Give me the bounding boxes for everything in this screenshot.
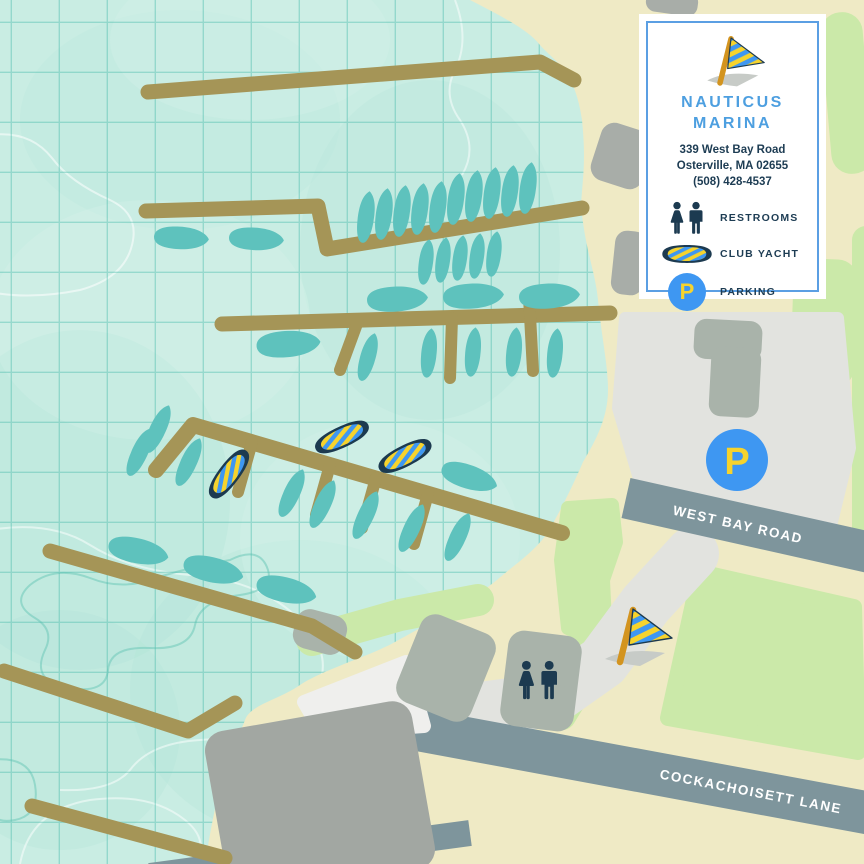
club-yacht-label: CLUB YACHT: [720, 248, 799, 260]
restrooms-label: RESTROOMS: [720, 212, 798, 224]
legend-card: NAUTICUS MARINA 339 West Bay Road Osterv…: [639, 14, 826, 299]
legend-row-parking: P PARKING: [662, 273, 817, 311]
parking-label: PARKING: [720, 286, 776, 298]
legend-row-club-yacht: CLUB YACHT: [662, 242, 817, 266]
marina-map-page: P WEST BAY ROAD COCKACHOISETT LANE NAUTI…: [0, 0, 864, 864]
marina-name-line1: NAUTICUS: [648, 93, 817, 114]
address-line2: Osterville, MA 02655: [648, 158, 817, 174]
legend-row-restrooms: RESTROOMS: [662, 201, 817, 235]
marina-flag-logo: [694, 33, 772, 89]
restrooms-icon: [667, 201, 707, 235]
marina-phone: (508) 428-4537: [648, 174, 817, 190]
address-line1: 339 West Bay Road: [648, 142, 817, 158]
marina-name-line2: MARINA: [648, 114, 817, 135]
parking-icon: P: [668, 273, 706, 311]
club-yacht-icon: [662, 242, 712, 266]
parking-symbol: P: [680, 279, 695, 305]
legend-list: RESTROOMS CLUB YACHT P PARKING: [648, 201, 817, 311]
parking-marker: P: [706, 429, 768, 491]
marina-address: 339 West Bay Road Osterville, MA 02655 (…: [648, 142, 817, 191]
marina-name: NAUTICUS MARINA: [648, 93, 817, 135]
parking-marker-symbol: P: [724, 441, 749, 483]
